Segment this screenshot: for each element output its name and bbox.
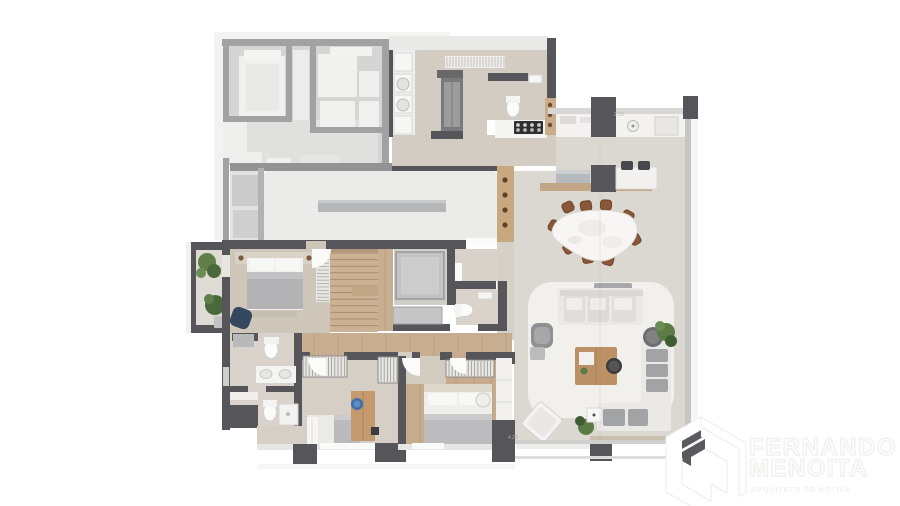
svg-text:2.16: 2.16 xyxy=(614,112,624,118)
svg-text:4.25: 4.25 xyxy=(508,435,518,441)
svg-text:MENOITA: MENOITA xyxy=(749,455,868,482)
svg-text:ARQUITETO DE NOTIVA: ARQUITETO DE NOTIVA xyxy=(751,487,851,494)
